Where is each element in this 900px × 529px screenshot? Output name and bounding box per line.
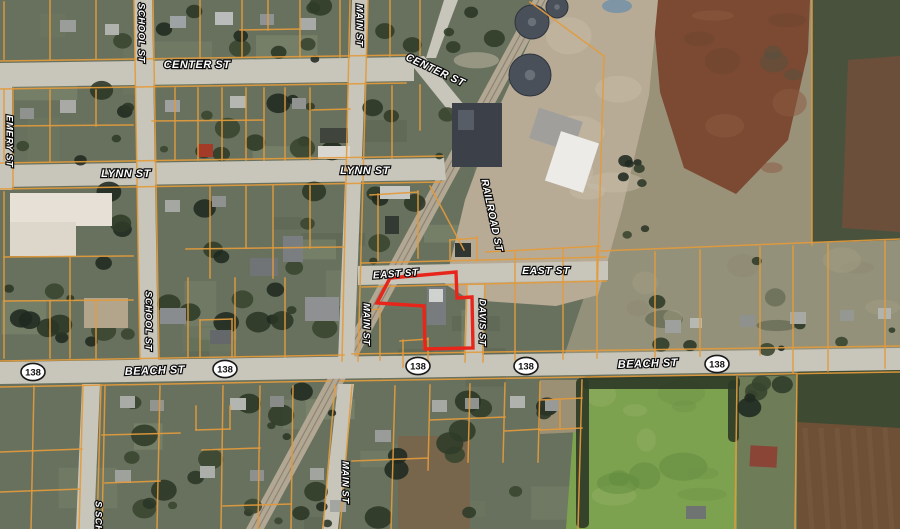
- building: [170, 16, 186, 28]
- satellite-map-canvas[interactable]: CENTER STCENTER STLYNN STLYNN STEAST STE…: [0, 0, 900, 529]
- building: [665, 320, 681, 333]
- route-shield: 138: [213, 360, 237, 377]
- building: [105, 24, 119, 35]
- satellite-parcel-map[interactable]: CENTER STCENTER STLYNN STLYNN STEAST STE…: [0, 0, 900, 529]
- building: [455, 243, 471, 257]
- building: [210, 330, 232, 344]
- building: [545, 400, 559, 411]
- building: [250, 258, 278, 276]
- building: [749, 445, 777, 467]
- building: [60, 100, 76, 113]
- building: [165, 100, 180, 112]
- building: [60, 20, 76, 32]
- building: [260, 14, 274, 25]
- street-label: LYNN ST: [340, 165, 391, 177]
- street-label: EMERY ST: [3, 115, 14, 168]
- building: [458, 110, 474, 130]
- building: [250, 470, 264, 481]
- street-label: DAVIS ST: [476, 299, 487, 347]
- building: [20, 108, 34, 119]
- building: [160, 308, 186, 324]
- route-shield: 138: [21, 363, 45, 380]
- street-label: SCHOOL ST: [135, 3, 146, 63]
- building: [200, 466, 215, 478]
- building: [510, 396, 525, 408]
- street-label: BEACH ST: [618, 357, 679, 371]
- building: [740, 315, 755, 327]
- building: [230, 398, 246, 410]
- street-label: MAIN ST: [353, 4, 364, 47]
- building: [375, 430, 391, 442]
- building: [465, 398, 479, 409]
- hedgerow: [582, 376, 740, 389]
- svg-text:138: 138: [217, 364, 233, 375]
- street-label: BEACH ST: [125, 364, 186, 378]
- building: [429, 289, 443, 302]
- building: [215, 12, 233, 25]
- building: [305, 297, 339, 321]
- building: [385, 216, 399, 234]
- route-shield: 138: [705, 355, 729, 372]
- street-label: EAST ST: [522, 265, 571, 277]
- street-label: LYNN ST: [101, 168, 152, 180]
- svg-text:138: 138: [25, 367, 41, 378]
- building: [10, 222, 76, 256]
- street-label: MAIN ST: [339, 461, 350, 504]
- field-far-right-patch: [842, 56, 900, 232]
- street-label: MAIN ST: [360, 303, 371, 346]
- building: [115, 470, 131, 483]
- svg-text:138: 138: [709, 359, 725, 370]
- building: [198, 144, 213, 157]
- building: [292, 98, 306, 109]
- building: [432, 400, 447, 412]
- building: [120, 396, 135, 408]
- building: [10, 193, 112, 226]
- building: [686, 506, 706, 519]
- building: [320, 128, 348, 143]
- street-label: S SCHOOL ST: [92, 501, 103, 529]
- route-shield: 138: [514, 357, 538, 374]
- building: [212, 196, 226, 207]
- route-shield: 138: [406, 357, 430, 374]
- building: [84, 298, 128, 328]
- building: [270, 396, 284, 407]
- building: [230, 96, 246, 108]
- building: [150, 400, 164, 411]
- building: [165, 200, 180, 212]
- street-label: CENTER ST: [164, 59, 232, 71]
- building: [840, 310, 854, 321]
- building: [283, 236, 303, 262]
- svg-text:138: 138: [518, 361, 534, 372]
- street-label: SCHOOL ST: [142, 291, 153, 351]
- building: [310, 468, 324, 480]
- svg-text:138: 138: [410, 361, 426, 372]
- building: [300, 18, 316, 30]
